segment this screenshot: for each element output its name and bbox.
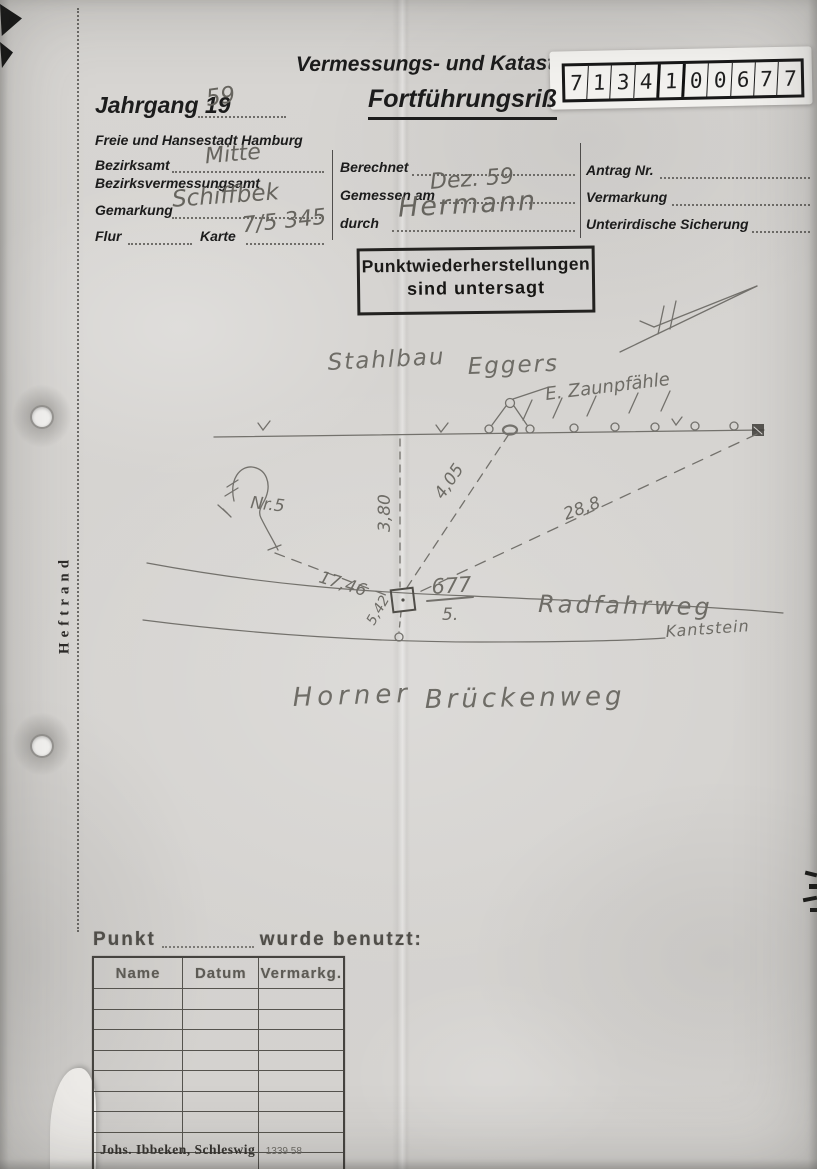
table-cell (93, 1091, 183, 1112)
column-header-vermarkg: Vermarkg. (259, 957, 344, 989)
table-row (93, 1030, 344, 1051)
table-row (93, 1091, 344, 1112)
table-row (93, 989, 344, 1010)
table-cell (93, 1030, 183, 1051)
label-measure-542: 5,42 (364, 593, 393, 628)
table-cell (259, 1112, 344, 1133)
table-cell (183, 1091, 259, 1112)
table-cell (93, 989, 183, 1010)
table-row (93, 1112, 344, 1133)
table-cell (259, 989, 344, 1010)
scanned-survey-document: Vermessungs- und Katasterverwaltung 7134… (0, 0, 817, 1169)
table-header-row: Name Datum Vermarkg. (93, 957, 344, 989)
table-cell (183, 1009, 259, 1030)
label-parcel-number: 677 (431, 572, 473, 599)
table-row (93, 1050, 344, 1071)
left-edge-shading (0, 0, 9, 1169)
points-used-table: Name Datum Vermarkg. (92, 956, 345, 1169)
printer-imprint: Johs. Ibbeken, Schleswig 1339 58 (100, 1141, 302, 1159)
label-parcel-denominator: 5. (442, 605, 458, 625)
table-cell (259, 1071, 344, 1092)
fence-line (214, 387, 764, 437)
label-measure-380: 3,80 (375, 494, 395, 532)
table-row (93, 1071, 344, 1092)
label-measure-405: 4,05 (431, 460, 469, 503)
table-cell (183, 989, 259, 1010)
label-zaunpfaehle: E. Zaunpfähle (544, 369, 671, 405)
table-cell (93, 1050, 183, 1071)
table-cell (183, 1030, 259, 1051)
punkt-benutzt-line: Punkt wurde benutzt: (93, 929, 423, 951)
table-cell (93, 1009, 183, 1030)
table-cell (93, 1112, 183, 1133)
label-street-brueckenweg: Brückenweg (425, 682, 626, 715)
table-cell (259, 1091, 344, 1112)
points-table-body (93, 989, 344, 1153)
measure-line-542 (399, 612, 401, 632)
column-header-datum: Datum (183, 957, 259, 989)
table-row (93, 1009, 344, 1030)
table-cell (259, 1009, 344, 1030)
table-cell (183, 1050, 259, 1071)
road-edge-lower (143, 620, 665, 642)
label-street-horner: Horner (292, 679, 412, 713)
table-cell (259, 1030, 344, 1051)
column-header-name: Name (93, 957, 183, 989)
table-cell (183, 1071, 259, 1092)
punkt-prefix: Punkt (93, 929, 156, 951)
label-measure-1746: 17,46 (317, 568, 370, 601)
table-cell (93, 1071, 183, 1092)
measure-line-405 (406, 434, 509, 589)
label-eggers: Eggers (467, 351, 559, 380)
label-nr5: Nr.5 (249, 493, 285, 516)
printer-imprint-name: Johs. Ibbeken, Schleswig (100, 1142, 255, 1157)
north-arrow (620, 286, 757, 352)
table-cell (259, 1050, 344, 1071)
punkt-leader (162, 945, 254, 948)
label-radfahrweg: Radfahrweg (538, 590, 713, 621)
label-measure-288: 28,8 (561, 493, 604, 525)
table-cell (183, 1112, 259, 1133)
label-stahlbau: Stahlbau (327, 344, 446, 376)
right-edge-shading (808, 0, 817, 1169)
bottom-edge-shading (0, 1159, 817, 1169)
printer-imprint-number: 1339 58 (266, 1146, 302, 1157)
punkt-suffix: wurde benutzt: (260, 929, 423, 951)
curb-point-symbol (395, 633, 403, 641)
